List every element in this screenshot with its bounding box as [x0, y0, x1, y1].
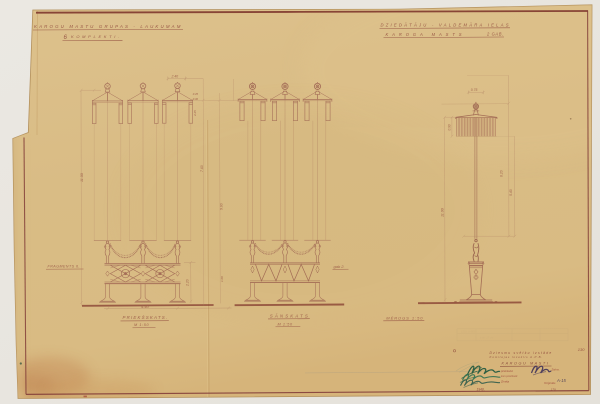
svg-text:Komitejas loceklis A.P.B.: Komitejas loceklis A.P.B. — [490, 355, 543, 359]
svg-text:DZIEDĀTĀJU - VALDEMĀRA IELAS: DZIEDĀTĀJU - VALDEMĀRA IELAS — [381, 23, 510, 28]
svg-text:1201 1t i805: 1201 1t i805 — [461, 330, 476, 334]
svg-text:Zakns.: Zakns. — [551, 367, 560, 371]
svg-text:6: 6 — [64, 34, 68, 41]
svg-text:MĒROGS 1:50: MĒROGS 1:50 — [386, 315, 423, 320]
svg-text:ir tik: 15 unt: ir tik: 15 unt — [480, 335, 494, 339]
svg-text:2.40: 2.40 — [171, 75, 179, 79]
svg-text:SĀNSKATS: SĀNSKATS — [270, 313, 309, 318]
svg-text:2 GAB.: 2 GAB. — [486, 32, 504, 37]
svg-text:gab 2.: gab 2. — [334, 264, 345, 269]
svg-text:Zīmēja: Zīmēja — [500, 379, 510, 383]
svg-text:130: 130 — [578, 347, 585, 352]
svg-text:9.60: 9.60 — [219, 203, 223, 210]
svg-text:11.00: 11.00 — [440, 208, 444, 217]
svg-text:11.00: 11.00 — [80, 173, 84, 182]
svg-text:6.20: 6.20 — [500, 170, 504, 177]
svg-text:2.25: 2.25 — [193, 110, 197, 117]
svg-text:Oriģināls: Oriģināls — [544, 380, 556, 385]
svg-text:4.40: 4.40 — [141, 304, 150, 309]
svg-text:7.60: 7.60 — [200, 165, 204, 172]
svg-text:A-15: A-15 — [556, 378, 567, 383]
svg-text:0.45: 0.45 — [193, 92, 199, 96]
svg-text:5.40: 5.40 — [509, 189, 513, 196]
svg-text:1.00: 1.00 — [220, 276, 224, 282]
svg-text:PRIEKŠSKATS.: PRIEKŠSKATS. — [123, 315, 169, 320]
svg-text:KAROGU MASTI: KAROGU MASTI — [502, 362, 550, 366]
svg-text:priekšsēd.: priekšsēd. — [500, 369, 514, 373]
svg-text:2.20: 2.20 — [185, 279, 189, 287]
svg-text:0.30: 0.30 — [193, 97, 199, 101]
svg-text:FRAGMENTS 6.: FRAGMENTS 6. — [48, 265, 81, 269]
svg-text:0.90: 0.90 — [447, 124, 451, 130]
svg-text:kom.priekšsēd.: kom.priekšsēd. — [501, 375, 518, 378]
svg-text:M 1:50: M 1:50 — [278, 322, 293, 326]
svg-text:KAROGU MASTU GRUPAS - LAUKUMAM: KAROGU MASTU GRUPAS - LAUKUMAM — [34, 24, 182, 29]
svg-text:1948.: 1948. — [477, 388, 485, 392]
svg-text:0.75: 0.75 — [471, 88, 478, 92]
svg-text:M 1:50: M 1:50 — [134, 323, 149, 327]
svg-text:179: 179 — [551, 387, 556, 391]
